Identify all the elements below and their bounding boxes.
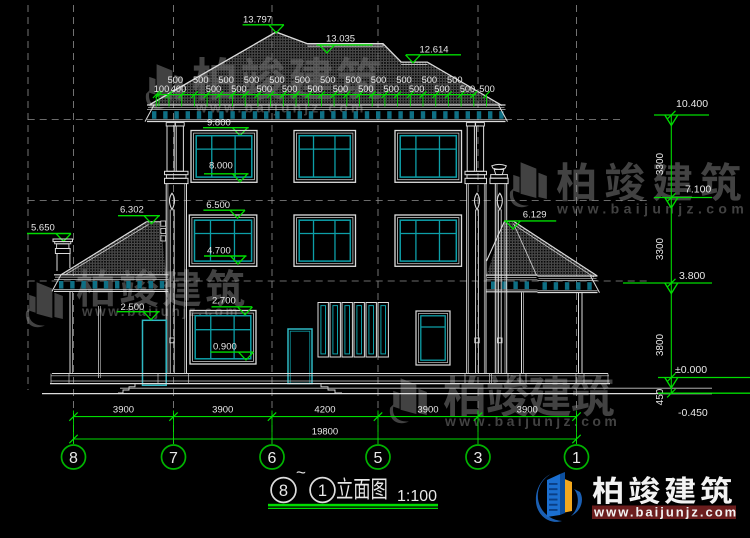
svg-text:500: 500: [256, 84, 272, 94]
svg-text:3: 3: [474, 450, 483, 467]
svg-text:13.035: 13.035: [326, 34, 355, 45]
svg-text:500: 500: [434, 84, 450, 94]
svg-text:450: 450: [655, 388, 666, 405]
svg-text:8: 8: [279, 482, 288, 500]
svg-text:19800: 19800: [312, 427, 338, 438]
svg-text:www.baijunjz.com: www.baijunjz.com: [556, 201, 748, 217]
svg-text:0.900: 0.900: [213, 341, 237, 352]
svg-text:8.000: 8.000: [209, 161, 233, 172]
svg-text:500: 500: [333, 84, 349, 94]
svg-text:500: 500: [358, 84, 374, 94]
svg-text:±0.000: ±0.000: [675, 364, 707, 376]
svg-text:9.800: 9.800: [207, 118, 231, 129]
svg-text:3900: 3900: [212, 405, 233, 416]
svg-text:3800: 3800: [655, 333, 666, 356]
svg-text:1:100: 1:100: [397, 488, 437, 505]
svg-text:4200: 4200: [314, 405, 335, 416]
svg-text:500: 500: [307, 84, 323, 94]
svg-text:1: 1: [572, 450, 581, 467]
svg-text:6.129: 6.129: [523, 210, 547, 221]
svg-text:8: 8: [69, 450, 78, 467]
svg-text:1: 1: [318, 482, 327, 500]
svg-text:-0.450: -0.450: [678, 407, 708, 419]
svg-text:~: ~: [296, 463, 306, 482]
svg-text:13.797: 13.797: [243, 15, 272, 26]
svg-text:500: 500: [206, 84, 222, 94]
svg-text:3300: 3300: [655, 237, 666, 260]
svg-text:5: 5: [374, 450, 383, 467]
svg-text:500: 500: [479, 84, 495, 94]
svg-text:6: 6: [268, 450, 277, 467]
svg-text:7: 7: [169, 450, 178, 467]
svg-text:3.800: 3.800: [679, 270, 705, 282]
svg-text:7.100: 7.100: [685, 184, 711, 196]
svg-text:100: 100: [154, 84, 170, 94]
svg-text:500: 500: [383, 84, 399, 94]
svg-text:6.302: 6.302: [120, 204, 144, 215]
svg-text:5.650: 5.650: [31, 223, 55, 234]
svg-text:500: 500: [460, 84, 476, 94]
svg-text:3900: 3900: [113, 405, 134, 416]
svg-text:500: 500: [168, 75, 184, 85]
svg-text:500: 500: [231, 84, 247, 94]
svg-text:4.700: 4.700: [207, 246, 231, 257]
svg-text:12.614: 12.614: [420, 44, 449, 55]
svg-text:3900: 3900: [417, 405, 438, 416]
svg-text:2.700: 2.700: [212, 295, 236, 306]
svg-text:www.baijunjz.com: www.baijunjz.com: [593, 505, 738, 520]
svg-text:500: 500: [409, 84, 425, 94]
svg-text:3300: 3300: [655, 152, 666, 175]
svg-text:10.400: 10.400: [676, 98, 708, 110]
svg-text:3900: 3900: [517, 405, 538, 416]
svg-text:500: 500: [282, 84, 298, 94]
svg-text:400: 400: [171, 84, 187, 94]
